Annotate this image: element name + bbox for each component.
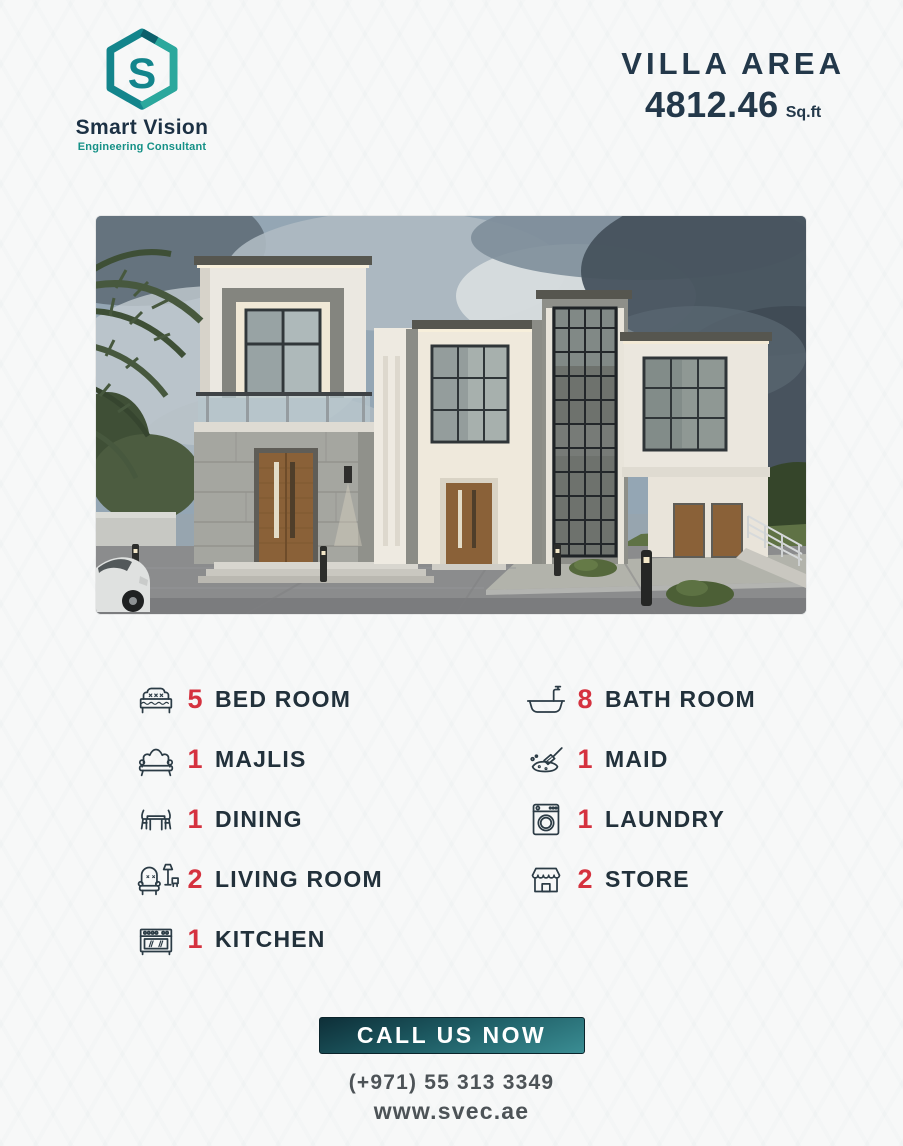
brand-tagline: Engineering Consultant [44, 141, 240, 153]
villa-area-panel: VILLA AREA 4812.46 Sq.ft [621, 46, 845, 126]
bed-icon [126, 677, 186, 723]
dining-icon [126, 797, 186, 843]
feature-dining: 1 DINING [126, 796, 383, 843]
storefront-icon [516, 857, 576, 903]
flyer-page: S Smart Vision Engineering Consultant VI… [0, 0, 903, 1146]
feature-store: 2 STORE [516, 856, 756, 903]
bathtub-icon [516, 677, 576, 723]
brand-name: Smart Vision [44, 116, 240, 139]
sofa-icon [126, 737, 186, 783]
feature-majlis: 1 MAJLIS [126, 736, 383, 783]
logo-monogram: S [128, 50, 157, 98]
feature-kitchen: 1 KITCHEN [126, 916, 383, 963]
feature-label: BED ROOM [215, 686, 351, 713]
feature-label: STORE [605, 866, 690, 893]
feature-label: LIVING ROOM [215, 866, 383, 893]
feature-count: 1 [186, 804, 204, 835]
feature-count: 5 [186, 684, 204, 715]
villa-photo [96, 216, 806, 614]
feature-living-room: 2 LIVING ROOM [126, 856, 383, 903]
feature-maid: 1 MAID [516, 736, 756, 783]
feature-label: LAUNDRY [605, 806, 725, 833]
feature-label: MAID [605, 746, 669, 773]
website-url[interactable]: www.svec.ae [0, 1098, 903, 1125]
feature-count: 1 [576, 804, 594, 835]
living-room-icon [126, 857, 186, 903]
feature-count: 1 [186, 924, 204, 955]
features-left-column: 5 BED ROOM 1 MAJLIS [126, 676, 383, 976]
villa-area-value: 4812.46 [645, 84, 779, 126]
hexagon-logo-icon: S [95, 24, 189, 116]
villa-area-title: VILLA AREA [621, 46, 845, 82]
call-us-now-button[interactable]: CALL US NOW [319, 1017, 585, 1054]
feature-label: KITCHEN [215, 926, 326, 953]
feature-bath-room: 8 BATH ROOM [516, 676, 756, 723]
feature-bed-room: 5 BED ROOM [126, 676, 383, 723]
feature-count: 2 [576, 864, 594, 895]
villa-area-unit: Sq.ft [786, 104, 822, 122]
feature-count: 2 [186, 864, 204, 895]
feature-count: 8 [576, 684, 594, 715]
feature-count: 1 [186, 744, 204, 775]
cleaning-icon [516, 737, 576, 783]
features-right-column: 8 BATH ROOM 1 MAID [516, 676, 756, 916]
feature-count: 1 [576, 744, 594, 775]
washing-machine-icon [516, 797, 576, 843]
stove-icon [126, 917, 186, 963]
brand-logo: S Smart Vision Engineering Consultant [44, 24, 240, 153]
feature-label: DINING [215, 806, 303, 833]
villa-illustration [96, 216, 806, 614]
feature-label: MAJLIS [215, 746, 307, 773]
feature-label: BATH ROOM [605, 686, 756, 713]
feature-laundry: 1 LAUNDRY [516, 796, 756, 843]
phone-number: (+971) 55 313 3349 [0, 1071, 903, 1095]
